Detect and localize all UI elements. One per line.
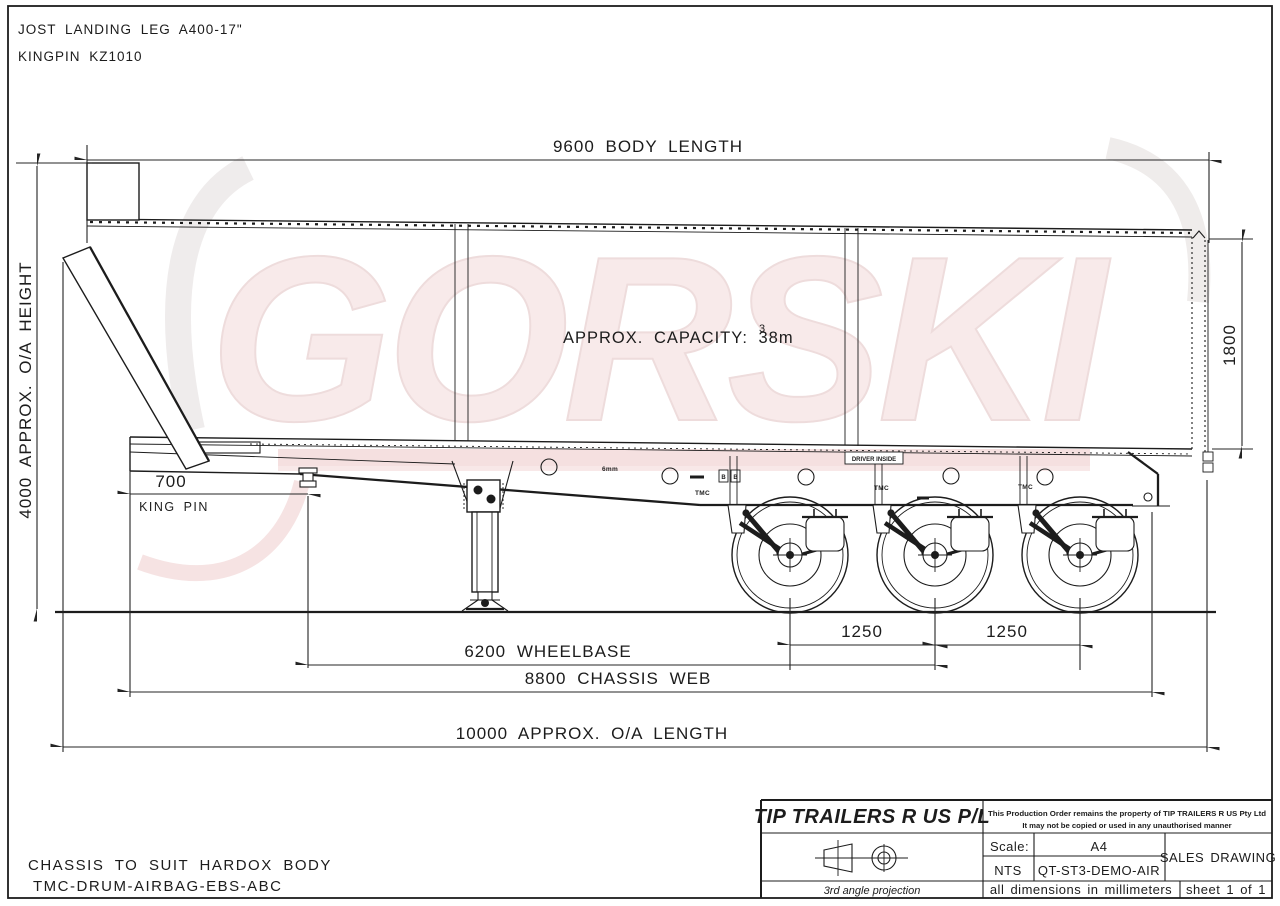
units-note: all dimensions in millimeters [990,882,1172,897]
drawing-type: SALES DRAWING [1160,850,1276,865]
watermark-band-lower [278,466,1090,471]
floor-plate-note: 6mm [602,466,618,473]
web-hole [798,469,814,485]
spec-note: TMC-DRUM-AIRBAG-EBS-ABC [33,878,283,895]
dim-body-height: 1800 [1220,324,1239,366]
projection-label: 3rd angle projection [824,885,921,897]
axle-brand-1: TMC [695,490,710,497]
property-notice-line2: It may not be copied or used in any unau… [1022,821,1231,830]
dim-wheelbase: 6200 WHEELBASE [464,642,631,661]
front-bulkhead [87,163,139,220]
footer-notes: CHASSIS TO SUIT HARDOX BODY TMC-DRUM-AIR… [28,857,332,895]
header-notes: JOST LANDING LEG A400-17" KINGPIN KZ1010 [18,22,243,64]
chassis-note: CHASSIS TO SUIT HARDOX BODY [28,857,332,874]
watermark-band [278,449,1090,466]
dim-overall-height: 4000 APPROX. O/A HEIGHT [16,261,35,518]
gorski-watermark: GORSKI [140,148,1199,573]
dim-axle-spacing-front: 1250 [841,622,883,641]
engineering-drawing-sheet: GORSKI JOST LANDING LEG A400-17" KINGPIN… [0,0,1280,906]
dim-axle-spacing-rear: 1250 [986,622,1028,641]
section-marker-b-left: B [721,475,726,481]
axle-brand-3: TMC [1018,484,1033,491]
axle-brand-2: TMC [874,485,889,492]
scale-value: NTS [994,863,1022,878]
tail-light [1144,493,1152,501]
section-marker-b-right: B [733,475,738,481]
dim-chassis-web: 8800 CHASSIS WEB [525,669,712,688]
capacity-exponent: 3 [759,323,765,335]
company-name: TIP TRAILERS R US P/L [754,806,990,828]
dim-body-length: 9600 BODY LENGTH [553,137,743,156]
axle-assembly-2 [873,456,993,613]
axle-assembly-3 [1018,456,1138,613]
trailer-drawing-svg: GORSKI JOST LANDING LEG A400-17" KINGPIN… [0,0,1280,906]
sheet-number: sheet 1 of 1 [1186,882,1266,897]
axle-assembly-1 [728,456,848,613]
scale-label: Scale: [990,839,1029,854]
property-notice-line1: This Production Order remains the proper… [988,809,1266,818]
dim-kingpin-label: KING PIN [139,500,209,514]
kingpin-note: KINGPIN KZ1010 [18,49,143,64]
running-gear: TMC TMC TMC [695,456,1138,613]
landing-leg-note: JOST LANDING LEG A400-17" [18,22,243,37]
title-block: TIP TRAILERS R US P/L This Production Or… [754,800,1276,898]
dim-kingpin-setback: 700 [155,472,186,491]
projection-symbol-icon [815,840,908,876]
kingpin [299,468,317,487]
landing-leg [452,461,513,611]
drawing-code: QT-ST3-DEMO-AIR [1038,863,1160,878]
driver-inside-label: DRIVER INSIDE [852,457,896,463]
paper-size: A4 [1091,839,1108,854]
dim-overall-length: 10000 APPROX. O/A LENGTH [456,724,728,743]
web-hole [1037,469,1053,485]
